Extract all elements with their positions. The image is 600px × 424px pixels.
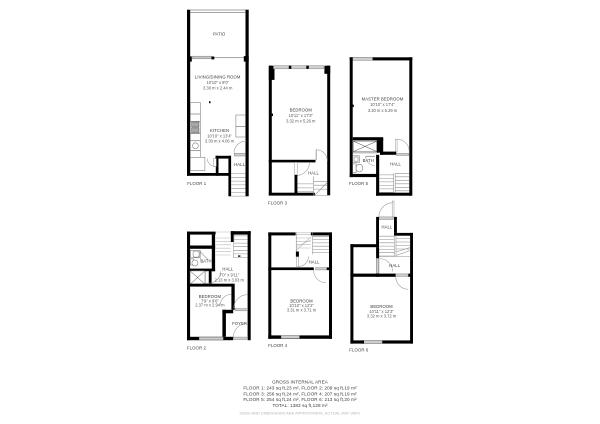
svg-text:GROSS INTERNAL AREA: GROSS INTERNAL AREA xyxy=(272,380,329,385)
svg-text:FLOOR 3: FLOOR 3 xyxy=(268,201,288,206)
svg-text:10'10" x 17'4": 10'10" x 17'4" xyxy=(370,102,395,107)
svg-text:FLOOR 4: FLOOR 4 xyxy=(268,343,288,348)
svg-text:FLOOR 5: FLOOR 5 xyxy=(349,181,369,186)
svg-text:FLOOR 1: 243 sq ft,23 m², FLOO: FLOOR 1: 243 sq ft,23 m², FLOOR 2: 209 s… xyxy=(243,386,357,391)
svg-text:3.30 m x 5.29 m: 3.30 m x 5.29 m xyxy=(368,108,398,113)
svg-text:LIVING/DINING ROOM: LIVING/DINING ROOM xyxy=(195,75,241,80)
svg-text:FLOOR 3: 256 sq ft,24 m², FLOO: FLOOR 3: 256 sq ft,24 m², FLOOR 4: 207 s… xyxy=(243,391,357,396)
svg-text:2.37 m x 2.94 m: 2.37 m x 2.94 m xyxy=(195,302,225,307)
svg-text:FLOOR 2: FLOOR 2 xyxy=(187,345,207,350)
svg-text:3.32 m x 5.26 m: 3.32 m x 5.26 m xyxy=(286,119,316,124)
svg-text:SIZES AND DIMENSIONS ARE APPRO: SIZES AND DIMENSIONS ARE APPROXIMATE, AC… xyxy=(239,411,361,416)
svg-text:KITCHEN: KITCHEN xyxy=(210,128,229,133)
svg-text:MASTER BEDROOM: MASTER BEDROOM xyxy=(362,97,404,102)
svg-text:HALL: HALL xyxy=(390,161,401,166)
svg-text:FLOOR 6: FLOOR 6 xyxy=(349,347,369,352)
svg-text:3.30 m x 2.44 m: 3.30 m x 2.44 m xyxy=(203,86,233,91)
svg-text:HALL: HALL xyxy=(308,170,319,175)
svg-text:2.13 m x 3.03 m: 2.13 m x 3.03 m xyxy=(215,277,245,282)
svg-text:BEDROOM: BEDROOM xyxy=(290,108,313,113)
svg-text:HALL: HALL xyxy=(389,263,400,268)
svg-text:HALL: HALL xyxy=(381,225,392,230)
svg-text:FLOOR 5: 254 sq ft,24 m², FLOO: FLOOR 5: 254 sq ft,24 m², FLOOR 6: 213 s… xyxy=(243,397,357,402)
svg-text:HALL: HALL xyxy=(234,162,245,167)
svg-text:PATIO: PATIO xyxy=(213,31,226,36)
svg-text:3.32 m x 3.72 m: 3.32 m x 3.72 m xyxy=(367,314,397,319)
svg-text:10'10" x 8'0": 10'10" x 8'0" xyxy=(206,80,229,85)
svg-text:BATH: BATH xyxy=(200,258,211,263)
svg-text:TOTAL: 1383 sq ft,128 m²: TOTAL: 1383 sq ft,128 m² xyxy=(272,403,327,408)
svg-text:3.30 m x 4.06 m: 3.30 m x 4.06 m xyxy=(205,139,235,144)
svg-text:HALL: HALL xyxy=(309,260,320,265)
svg-text:HALL: HALL xyxy=(222,266,233,271)
svg-text:3.31 m x 3.71 m: 3.31 m x 3.71 m xyxy=(287,308,317,313)
svg-text:10'11" x 17'3": 10'11" x 17'3" xyxy=(289,113,314,118)
svg-text:FLOOR 1: FLOOR 1 xyxy=(187,181,207,186)
